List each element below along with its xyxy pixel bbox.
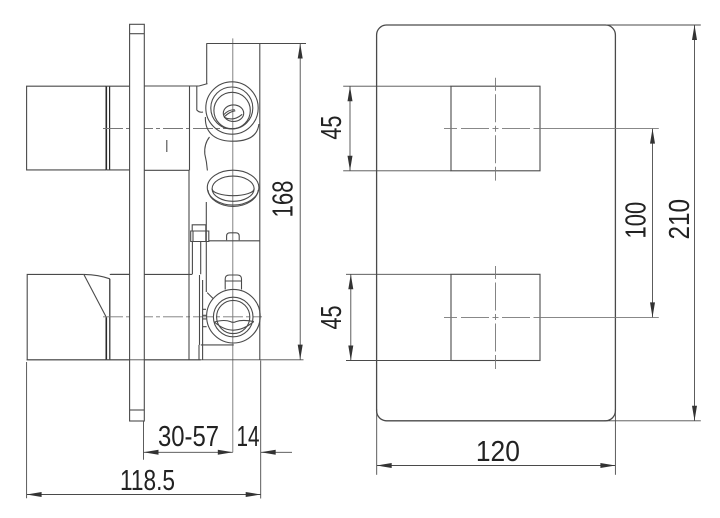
svg-text:45: 45: [316, 116, 348, 140]
svg-text:14: 14: [237, 421, 260, 453]
svg-text:30-57: 30-57: [158, 421, 219, 453]
svg-text:100: 100: [620, 202, 652, 239]
svg-text:118.5: 118.5: [120, 465, 175, 497]
svg-text:168: 168: [268, 181, 300, 218]
svg-text:210: 210: [664, 199, 696, 240]
svg-text:120: 120: [476, 436, 520, 468]
svg-text:45: 45: [316, 306, 348, 330]
